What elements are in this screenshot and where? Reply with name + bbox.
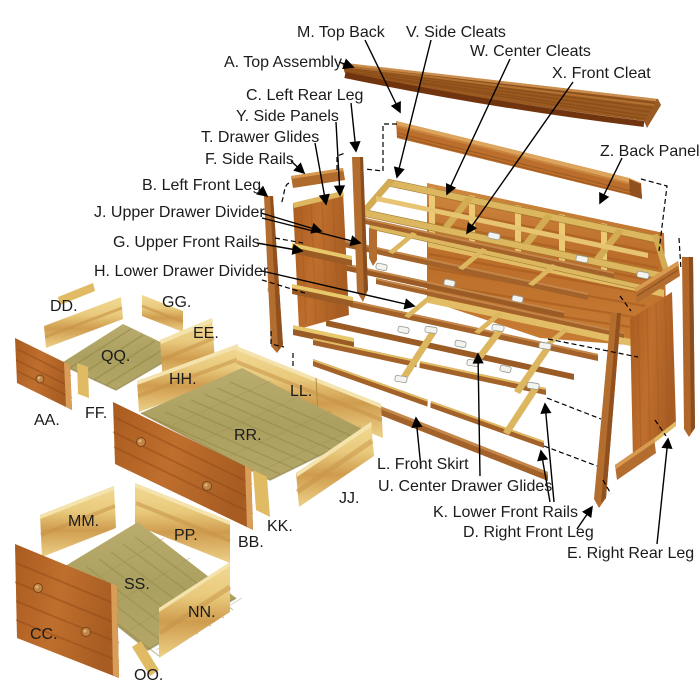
svg-text:EE.: EE.	[193, 325, 219, 342]
svg-text:Y. Side Panels: Y. Side Panels	[236, 108, 339, 125]
svg-text:RR.: RR.	[234, 427, 262, 444]
svg-text:J. Upper Drawer Divider: J. Upper Drawer Divider	[94, 204, 265, 221]
svg-text:JJ.: JJ.	[339, 490, 359, 507]
svg-text:LL.: LL.	[290, 383, 312, 400]
svg-text:K. Lower Front Rails: K. Lower Front Rails	[433, 504, 578, 521]
svg-text:L. Front Skirt: L. Front Skirt	[377, 456, 469, 473]
svg-text:F. Side Rails: F. Side Rails	[205, 151, 294, 168]
svg-text:HH.: HH.	[169, 371, 197, 388]
svg-text:X. Front Cleat: X. Front Cleat	[552, 65, 651, 82]
svg-text:A. Top Assembly: A. Top Assembly	[224, 54, 342, 71]
svg-text:FF.: FF.	[85, 405, 107, 422]
svg-text:D. Right Front Leg: D. Right Front Leg	[463, 524, 594, 541]
svg-text:B. Left Front Leg: B. Left Front Leg	[142, 177, 261, 194]
svg-text:Z. Back Panel: Z. Back Panel	[600, 143, 700, 160]
svg-text:MM.: MM.	[68, 513, 99, 530]
svg-text:QQ.: QQ.	[101, 348, 130, 365]
svg-text:OO.: OO.	[134, 667, 163, 684]
svg-text:SS.: SS.	[124, 576, 150, 593]
svg-text:KK.: KK.	[267, 518, 293, 535]
svg-text:E. Right Rear Leg: E. Right Rear Leg	[567, 545, 694, 562]
svg-text:G. Upper Front Rails: G. Upper Front Rails	[113, 234, 260, 251]
svg-text:H. Lower Drawer Divider: H. Lower Drawer Divider	[94, 263, 269, 280]
svg-text:AA.: AA.	[34, 412, 60, 429]
svg-text:W. Center Cleats: W. Center Cleats	[470, 43, 591, 60]
svg-text:GG.: GG.	[162, 294, 191, 311]
svg-text:T. Drawer Glides: T. Drawer Glides	[201, 129, 319, 146]
svg-text:NN.: NN.	[188, 604, 216, 621]
svg-text:M. Top Back: M. Top Back	[297, 24, 386, 41]
svg-text:C. Left Rear Leg: C. Left Rear Leg	[246, 87, 363, 104]
svg-text:BB.: BB.	[238, 534, 264, 551]
svg-text:DD.: DD.	[50, 298, 78, 315]
svg-text:V. Side Cleats: V. Side Cleats	[406, 24, 506, 41]
svg-text:PP.: PP.	[174, 527, 198, 544]
svg-text:U. Center Drawer Glides: U. Center Drawer Glides	[378, 478, 552, 495]
svg-text:CC.: CC.	[30, 626, 58, 643]
